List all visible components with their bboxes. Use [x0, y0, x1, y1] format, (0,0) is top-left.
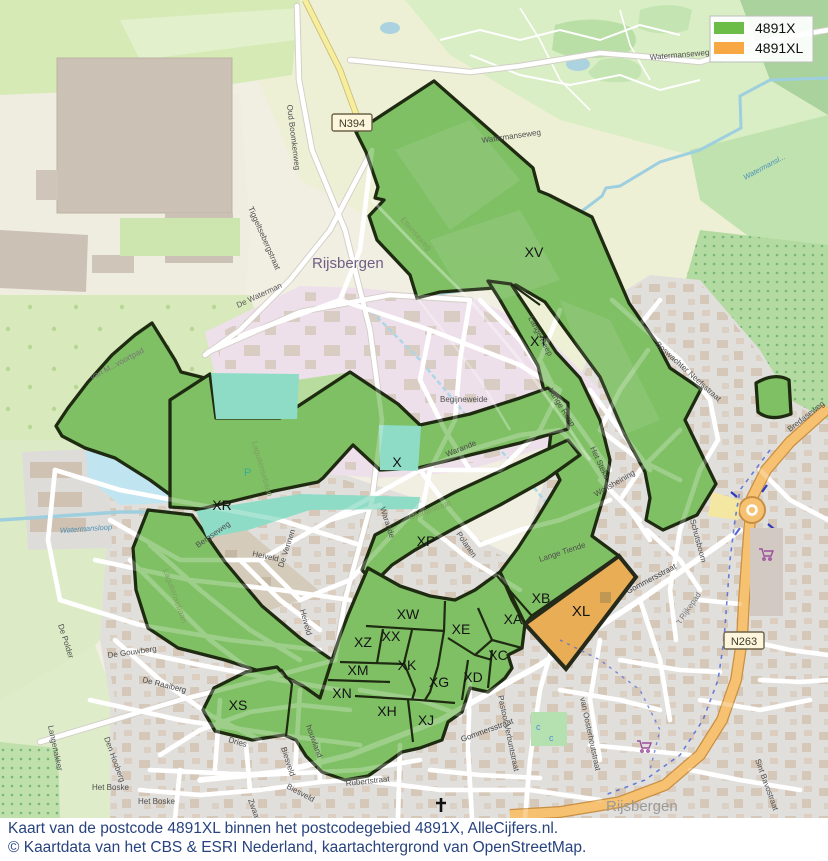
svg-text:Rijsbergen: Rijsbergen [312, 255, 384, 272]
svg-text:XZ: XZ [354, 634, 372, 650]
svg-text:N263: N263 [731, 636, 757, 648]
svg-text:N394: N394 [339, 118, 365, 130]
svg-text:XD: XD [463, 669, 482, 685]
svg-text:XJ: XJ [418, 712, 434, 728]
svg-text:XB: XB [532, 590, 551, 606]
svg-text:XP: XP [417, 533, 436, 549]
svg-text:Het Boske: Het Boske [138, 797, 175, 806]
svg-text:XH: XH [377, 703, 396, 719]
svg-text:X: X [392, 454, 402, 470]
svg-text:XX: XX [382, 628, 401, 644]
svg-text:4891XL: 4891XL [755, 40, 803, 56]
svg-text:XM: XM [348, 662, 369, 678]
svg-text:c: c [536, 722, 541, 732]
svg-text:XN: XN [332, 685, 351, 701]
svg-text:XR: XR [212, 497, 231, 513]
svg-text:XW: XW [397, 606, 420, 622]
svg-text:XS: XS [229, 697, 248, 713]
svg-text:Begijneweide: Begijneweide [440, 395, 488, 404]
svg-text:Kaart van de postcode 4891XL b: Kaart van de postcode 4891XL binnen het … [8, 820, 558, 837]
svg-text:XC: XC [488, 647, 507, 663]
svg-text:P: P [244, 467, 251, 479]
svg-text:XA: XA [504, 611, 523, 627]
svg-text:© Kaartdata van het CBS & ESRI: © Kaartdata van het CBS & ESRI Nederland… [8, 839, 586, 856]
svg-text:Het Boske: Het Boske [92, 783, 129, 792]
svg-text:XK: XK [398, 657, 417, 673]
svg-text:XL: XL [572, 603, 590, 620]
svg-text:Rijsbergen: Rijsbergen [606, 798, 678, 815]
svg-text:XE: XE [452, 621, 471, 637]
svg-text:XG: XG [429, 674, 449, 690]
svg-text:XV: XV [525, 244, 544, 260]
svg-text:4891X: 4891X [755, 20, 796, 36]
svg-text:c: c [549, 733, 554, 743]
